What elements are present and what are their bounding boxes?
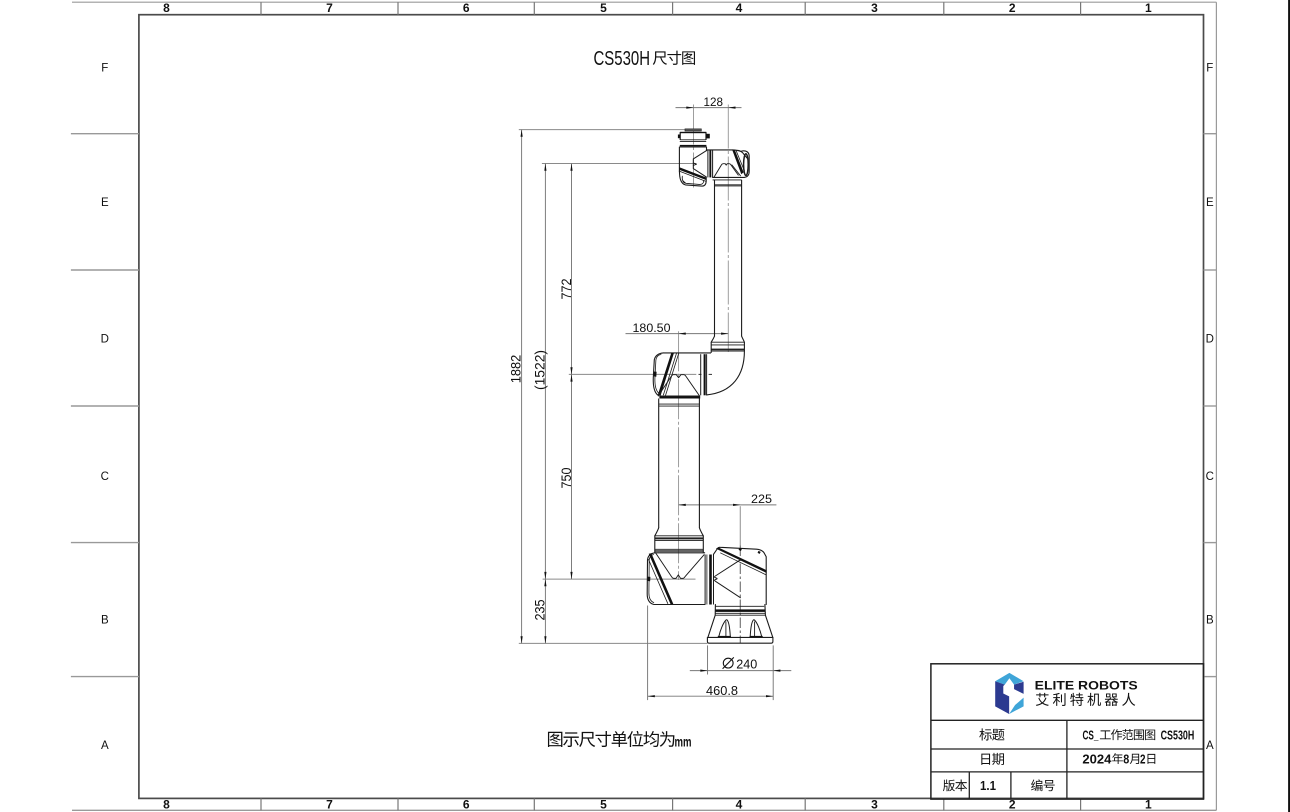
- svg-text:B: B: [101, 615, 109, 627]
- svg-text:6: 6: [463, 1, 470, 15]
- svg-text:1: 1: [1145, 1, 1152, 15]
- svg-text:4: 4: [736, 1, 743, 15]
- svg-text:E: E: [1206, 197, 1214, 209]
- svg-text:460.8: 460.8: [706, 683, 738, 698]
- svg-text:7: 7: [326, 798, 333, 812]
- svg-text:(1522): (1522): [532, 350, 548, 390]
- svg-text:CS530H: CS530H: [594, 47, 651, 70]
- svg-text:6: 6: [463, 798, 470, 812]
- svg-text:E: E: [101, 197, 109, 209]
- svg-text:750: 750: [558, 467, 574, 488]
- svg-text:240: 240: [736, 656, 757, 671]
- svg-text:2024: 2024: [1082, 751, 1112, 766]
- svg-text:mm: mm: [675, 733, 692, 749]
- svg-text:225: 225: [751, 492, 772, 506]
- svg-text:772: 772: [558, 278, 574, 299]
- svg-text:C: C: [1206, 471, 1214, 483]
- svg-text:1.1: 1.1: [980, 779, 996, 793]
- svg-text:C: C: [101, 471, 109, 483]
- svg-text:235: 235: [532, 599, 548, 620]
- svg-text:4: 4: [736, 798, 743, 812]
- svg-text:D: D: [1206, 334, 1214, 346]
- svg-text:2: 2: [1009, 1, 1016, 15]
- svg-text:180.50: 180.50: [633, 321, 671, 335]
- svg-text:CS530H: CS530H: [1161, 727, 1195, 742]
- svg-text:7: 7: [326, 1, 333, 15]
- svg-text:A: A: [1206, 740, 1214, 752]
- svg-text:A: A: [101, 740, 109, 752]
- svg-text:8: 8: [163, 798, 170, 812]
- svg-text:F: F: [1206, 62, 1213, 74]
- svg-text:F: F: [101, 62, 108, 74]
- svg-text:CS_: CS_: [1083, 727, 1100, 742]
- svg-text:3: 3: [871, 1, 878, 15]
- svg-text:B: B: [1206, 615, 1214, 627]
- svg-text:ELITE ROBOTS: ELITE ROBOTS: [1035, 680, 1138, 692]
- svg-text:128: 128: [704, 95, 724, 109]
- svg-text:3: 3: [871, 798, 878, 812]
- svg-text:8: 8: [163, 1, 170, 15]
- svg-text:1882: 1882: [507, 355, 523, 384]
- svg-text:8: 8: [1123, 751, 1129, 766]
- svg-text:2: 2: [1140, 751, 1146, 766]
- svg-text:5: 5: [600, 798, 607, 812]
- svg-text:D: D: [101, 334, 109, 346]
- svg-text:5: 5: [600, 1, 607, 15]
